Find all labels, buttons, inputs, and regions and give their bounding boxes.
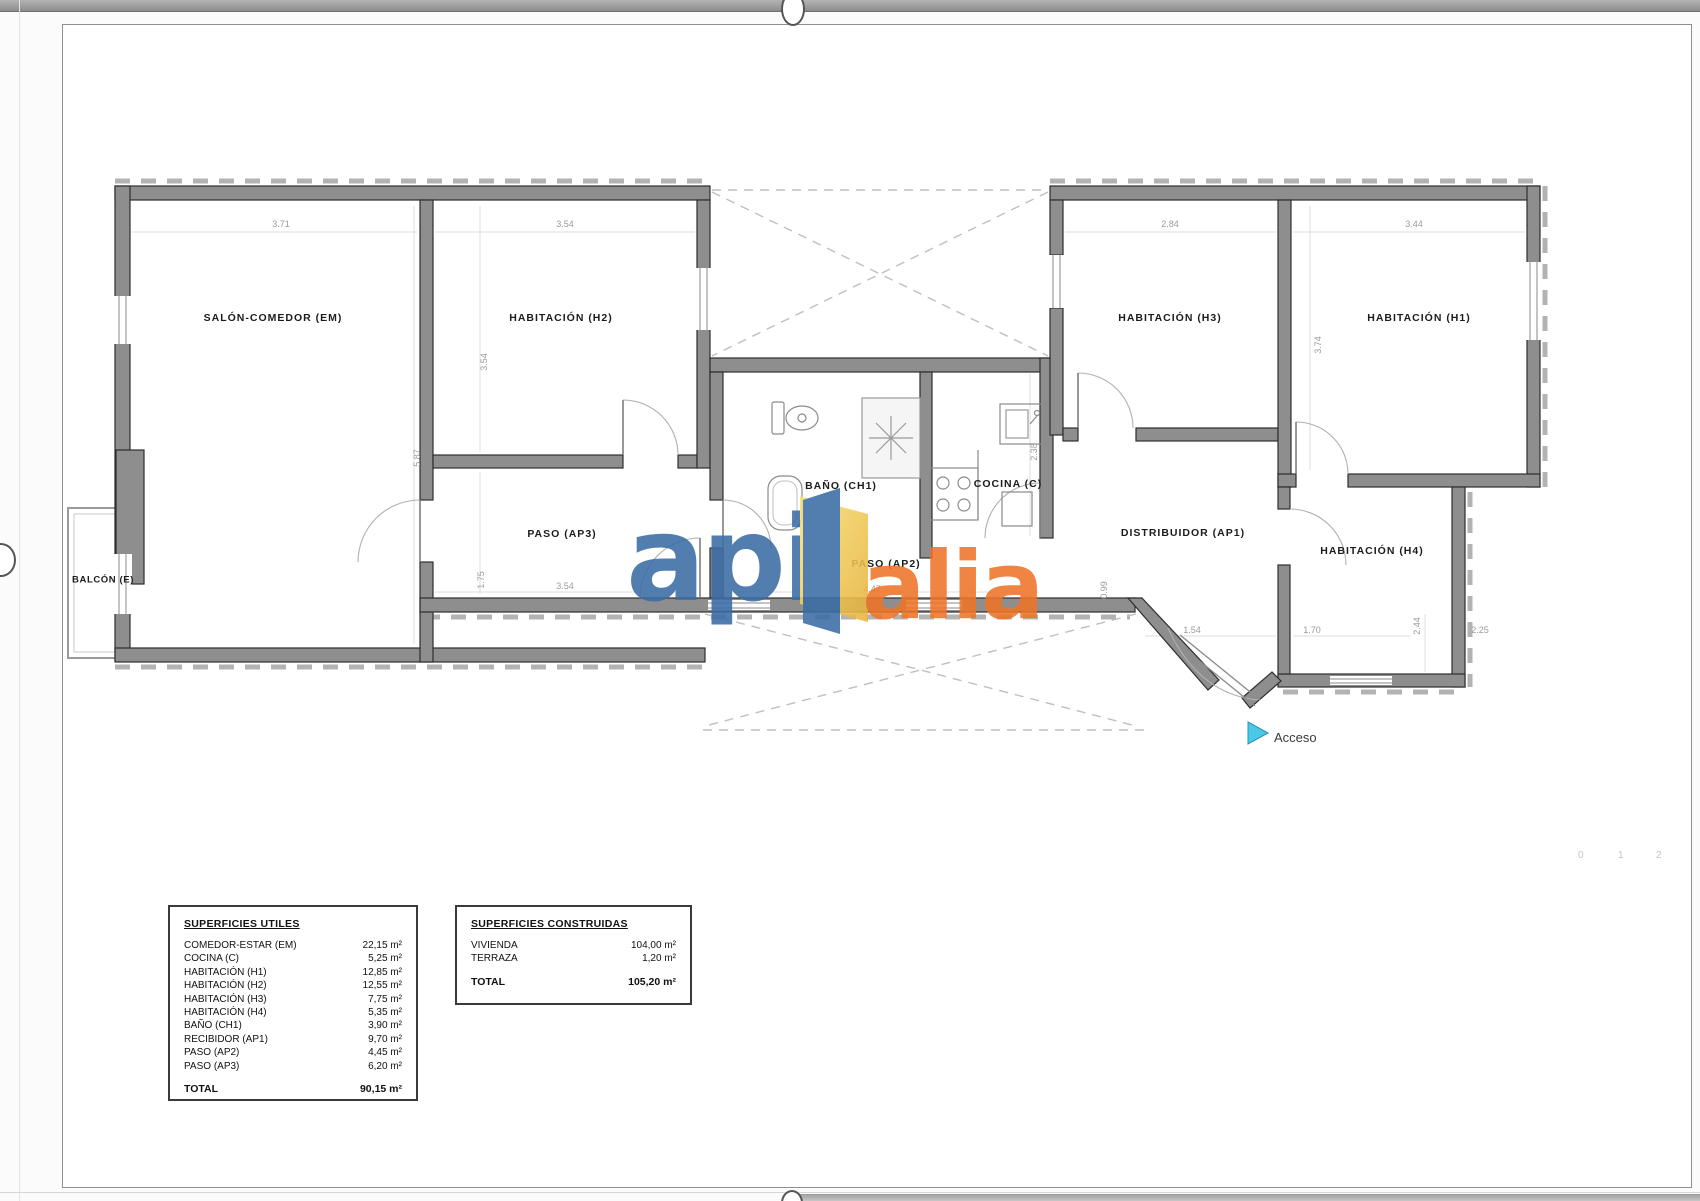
dimension-text: 3.74 [1313, 336, 1323, 354]
surface-value: 104,00 m² [631, 939, 676, 952]
dimension-text: 2.25 [1471, 625, 1489, 635]
dimension-text: 2.38 [1029, 443, 1039, 461]
dimension-text: 5.87 [412, 449, 422, 467]
dimension-text: 3.54 [556, 219, 574, 229]
built-surfaces-table: SUPERFICIES CONSTRUIDAS VIVIENDA104,00 m… [455, 905, 692, 1005]
logo-text-api: api [626, 490, 819, 628]
room-label-paso-ap3: PASO (AP3) [527, 528, 596, 540]
surface-value: 1,20 m² [642, 952, 676, 965]
scale-bar-number: 1 [1618, 850, 1624, 861]
dimension-text: 1.70 [1303, 625, 1321, 635]
access-arrow-icon [1248, 722, 1268, 744]
scale-bar-number: 0 [1578, 850, 1584, 861]
surface-row: COMEDOR-ESTAR (EM)22,15 m² [184, 939, 402, 952]
toilet-bowl-icon [786, 406, 818, 430]
room-label-balcon: BALCÓN (E) [72, 575, 134, 586]
surface-value: 4,45 m² [368, 1046, 402, 1059]
surface-label: COCINA (C) [184, 952, 239, 965]
surface-label: HABITACIÓN (H2) [184, 979, 267, 992]
room-label-salon-comedor: SALÓN-COMEDOR (EM) [204, 312, 343, 324]
surface-label: PASO (AP3) [184, 1060, 239, 1073]
access-label: Acceso [1274, 730, 1317, 745]
room-label-habitacion-h1: HABITACIÓN (H1) [1367, 312, 1470, 324]
surface-label: VIVIENDA [471, 939, 518, 952]
dimension-text: 1.54 [1183, 625, 1201, 635]
surface-row: HABITACIÓN (H2)12,55 m² [184, 979, 402, 992]
dimension-text: 2.84 [1161, 219, 1179, 229]
useful-surfaces-title: SUPERFICIES UTILES [184, 918, 402, 930]
surface-value: 5,35 m² [368, 1006, 402, 1019]
apialia-logo: api alia [600, 460, 1080, 660]
surface-row: HABITACIÓN (H4)5,35 m² [184, 1006, 402, 1019]
surface-row: HABITACIÓN (H1)12,85 m² [184, 966, 402, 979]
surface-label: COMEDOR-ESTAR (EM) [184, 939, 297, 952]
surface-value: 3,90 m² [368, 1019, 402, 1032]
logo-fold-blue [803, 488, 840, 634]
room-label-habitacion-h4: HABITACIÓN (H4) [1320, 545, 1423, 557]
surface-row: HABITACIÓN (H3)7,75 m² [184, 993, 402, 1006]
surface-row: PASO (AP3)6,20 m² [184, 1060, 402, 1073]
dimension-text: 1.75 [476, 571, 486, 589]
surface-row: TERRAZA1,20 m² [471, 952, 676, 965]
surface-label: BAÑO (CH1) [184, 1019, 242, 1032]
surfaces-total-row: TOTAL105,20 m² [471, 976, 676, 989]
surface-label: PASO (AP2) [184, 1046, 239, 1059]
logo-text-alia: alia [862, 532, 1041, 641]
surface-label: TERRAZA [471, 952, 518, 965]
total-label: TOTAL [471, 976, 505, 989]
surface-label: HABITACIÓN (H3) [184, 993, 267, 1006]
total-label: TOTAL [184, 1083, 218, 1096]
surfaces-total-row: TOTAL90,15 m² [184, 1083, 402, 1096]
surface-value: 12,55 m² [363, 979, 402, 992]
dimension-text: 2.44 [1412, 617, 1422, 635]
surface-value: 9,70 m² [368, 1033, 402, 1046]
toilet-tank-icon [772, 402, 784, 434]
surface-label: RECIBIDOR (AP1) [184, 1033, 268, 1046]
room-label-habitacion-h2: HABITACIÓN (H2) [509, 312, 612, 324]
surface-row: BAÑO (CH1)3,90 m² [184, 1019, 402, 1032]
surface-row: COCINA (C)5,25 m² [184, 952, 402, 965]
sheet-canvas: SALÓN-COMEDOR (EM) HABITACIÓN (H2) HABIT… [0, 0, 1700, 1201]
dimension-text: 3.44 [1405, 219, 1423, 229]
surface-row: RECIBIDOR (AP1)9,70 m² [184, 1033, 402, 1046]
surface-value: 12,85 m² [363, 966, 402, 979]
surface-value: 6,20 m² [368, 1060, 402, 1073]
surface-value: 5,25 m² [368, 952, 402, 965]
surface-value: 22,15 m² [363, 939, 402, 952]
total-value: 105,20 m² [628, 976, 676, 989]
room-label-distribuidor: DISTRIBUIDOR (AP1) [1121, 527, 1245, 539]
surface-row: PASO (AP2)4,45 m² [184, 1046, 402, 1059]
useful-surfaces-table: SUPERFICIES UTILES COMEDOR-ESTAR (EM)22,… [168, 905, 418, 1101]
surface-label: HABITACIÓN (H4) [184, 1006, 267, 1019]
room-label-habitacion-h3: HABITACIÓN (H3) [1118, 312, 1221, 324]
surface-row: VIVIENDA104,00 m² [471, 939, 676, 952]
dimension-text: 3.54 [556, 581, 574, 591]
dimension-text: 3.54 [479, 353, 489, 371]
scale-bar-number: 2 [1656, 850, 1662, 861]
surface-label: HABITACIÓN (H1) [184, 966, 267, 979]
dimension-text: 0.99 [1099, 581, 1109, 599]
total-value: 90,15 m² [360, 1083, 402, 1096]
surface-value: 7,75 m² [368, 993, 402, 1006]
dimension-text: 3.71 [272, 219, 290, 229]
built-surfaces-title: SUPERFICIES CONSTRUIDAS [471, 918, 676, 930]
